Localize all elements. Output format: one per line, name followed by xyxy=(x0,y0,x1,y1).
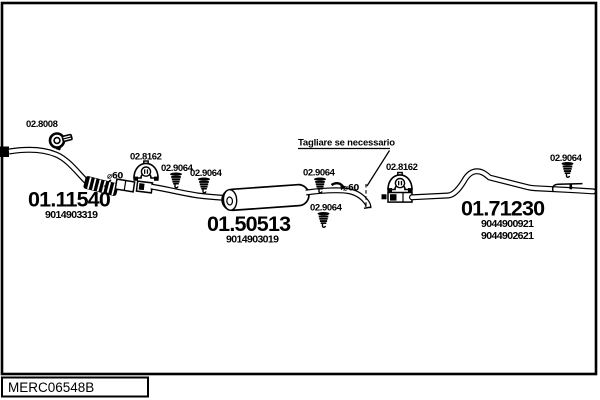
hanger-icon-2 xyxy=(198,178,210,193)
front-pipe-ref: 9014903319 xyxy=(45,209,98,221)
code-plate-label: MERC06548B xyxy=(8,380,94,395)
hanger-code-label-3: 02.9064 xyxy=(303,168,336,179)
hanger-code-label-4: 02.9064 xyxy=(310,203,343,214)
clamp-code-label: 02.8008 xyxy=(26,119,58,130)
tail-pipe-code: 01.71230 xyxy=(461,197,545,221)
bracket-icon-1 xyxy=(133,161,158,181)
diameter-label-1: ⌀60 xyxy=(107,172,123,182)
bracket-code-label-1: 02.8162 xyxy=(130,152,162,163)
pipe-clamp-piece xyxy=(136,181,152,193)
diagram-svg: 02.8008 02.8162 02.9064 02.9064 02.9064 … xyxy=(0,0,600,400)
hanger-code-label-1: 02.9064 xyxy=(161,163,194,174)
hanger-icon-1 xyxy=(170,173,182,188)
front-pipe-path xyxy=(9,150,86,181)
clamp-icon xyxy=(50,134,72,151)
tail-flange xyxy=(388,193,412,203)
diameter-label-2: ⌀60 xyxy=(343,184,359,194)
hanger-icon-5 xyxy=(562,162,574,177)
tail-pipe-ref-1: 9044900921 xyxy=(481,218,534,230)
bracket-code-label-2: 02.8162 xyxy=(386,162,418,173)
bracket-icon-2 xyxy=(387,173,412,193)
tail-gasket xyxy=(382,194,387,199)
silencer-ref: 9014903019 xyxy=(226,234,279,246)
hanger-code-label-2: 02.9064 xyxy=(190,168,223,179)
exhaust-parts-diagram: 02.8008 02.8162 02.9064 02.9064 02.9064 … xyxy=(0,0,600,400)
tail-pipe-ref-2: 9044902621 xyxy=(481,230,534,242)
front-flange xyxy=(0,147,9,158)
front-pipe-code: 01.11540 xyxy=(28,188,111,212)
hanger-code-label-5: 02.9064 xyxy=(550,153,583,164)
silencer-code: 01.50513 xyxy=(207,212,291,236)
hanger-icon-4 xyxy=(318,212,330,227)
cut-note: Tagliare se necessario xyxy=(298,138,395,149)
middle-silencer xyxy=(221,184,309,211)
